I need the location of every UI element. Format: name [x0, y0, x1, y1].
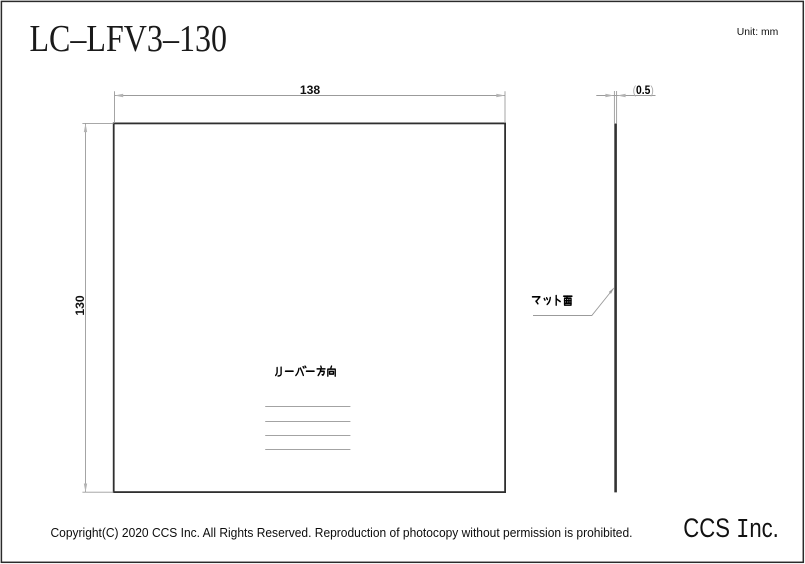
- svg-text:CCS Inc.: CCS Inc.: [683, 513, 779, 546]
- svg-text:Unit: mm: Unit: mm: [737, 27, 779, 38]
- svg-text:Copyright(C) 2020 CCS Inc. All: Copyright(C) 2020 CCS Inc. All Rights Re…: [51, 525, 633, 540]
- svg-text:(0.5): (0.5): [633, 84, 654, 97]
- svg-text:LC–LFV3–130: LC–LFV3–130: [30, 18, 228, 60]
- svg-text:138: 138: [300, 83, 321, 97]
- svg-text:130: 130: [73, 295, 87, 316]
